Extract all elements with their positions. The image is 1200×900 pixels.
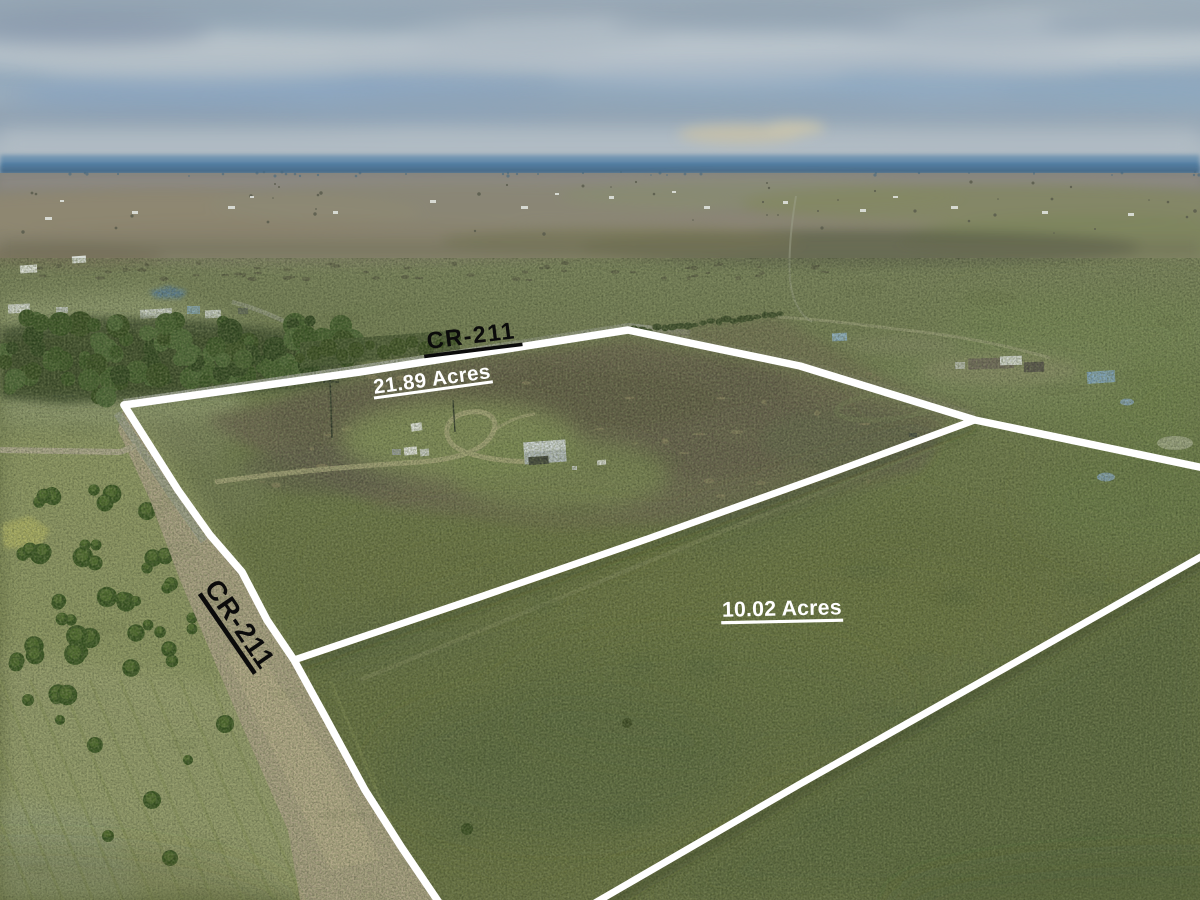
svg-text:10.02 Acres: 10.02 Acres: [722, 595, 842, 622]
